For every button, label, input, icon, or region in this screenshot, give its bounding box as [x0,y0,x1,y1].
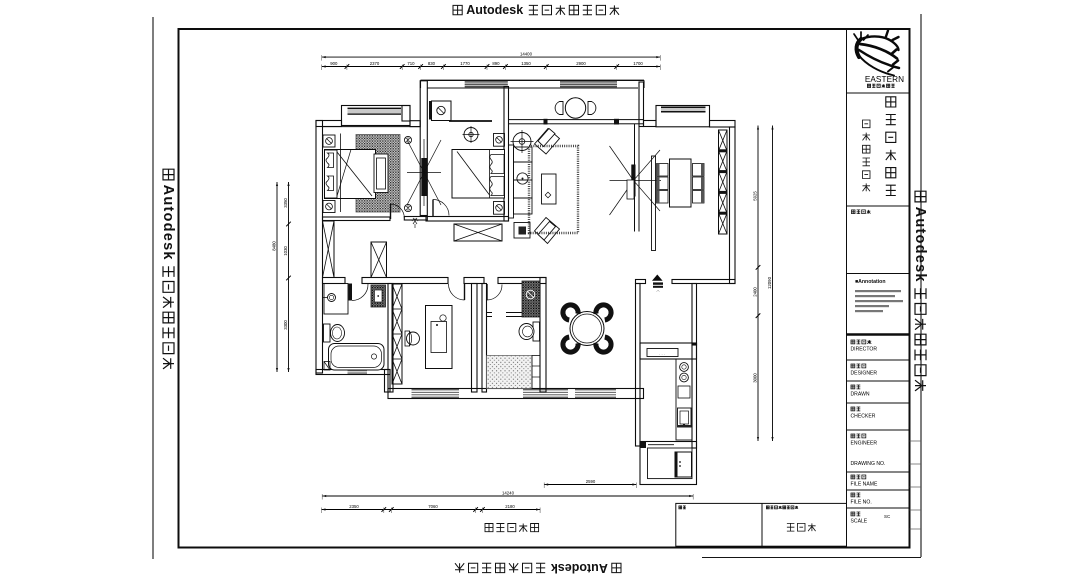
svg-text:5925: 5925 [753,191,758,201]
svg-text:·*·: ·*· [656,290,660,294]
svg-text:14400: 14400 [520,52,533,57]
svg-text:2400: 2400 [753,287,758,297]
svg-text:DRAWING NO.: DRAWING NO. [851,461,886,467]
svg-text:Autodesk: Autodesk [160,185,176,261]
svg-text:2590: 2590 [586,479,596,484]
svg-text:2180: 2180 [505,504,515,509]
svg-text:1030: 1030 [283,246,288,256]
svg-text:DIRECTOR: DIRECTOR [851,347,878,353]
svg-text:3300: 3300 [283,320,288,330]
svg-text:1770: 1770 [460,61,470,66]
svg-text:1700: 1700 [633,61,643,66]
svg-text:FILE NAME: FILE NAME [851,482,878,488]
svg-text:Autodesk: Autodesk [466,3,523,17]
svg-text:EASTERN: EASTERN [865,75,904,84]
svg-text:2900: 2900 [576,61,586,66]
svg-text:Autodesk: Autodesk [912,207,928,283]
svg-text:1350: 1350 [521,61,531,66]
svg-text:7060: 7060 [428,504,438,509]
svg-text:12090: 12090 [767,276,772,289]
svg-text:14240: 14240 [502,490,515,495]
svg-text:SC: SC [884,514,891,519]
svg-text:CHECKER: CHECKER [851,414,876,420]
svg-text:. . .: . . . [659,351,665,356]
svg-text:DESIGNER: DESIGNER [851,371,878,377]
svg-text:3350: 3350 [283,198,288,208]
svg-text:8480: 8480 [272,241,277,251]
svg-text:890: 890 [492,61,500,66]
svg-text:ENGINEER: ENGINEER [851,441,878,447]
svg-text:2350: 2350 [349,504,359,509]
svg-text:Autodesk: Autodesk [551,561,608,575]
svg-text:DRAWN: DRAWN [851,392,870,398]
svg-text:710: 710 [407,61,415,66]
svg-text:3000: 3000 [753,373,758,383]
svg-text:FILE NO.: FILE NO. [851,500,872,506]
svg-text:■Annotation: ■Annotation [855,279,886,285]
svg-text:2370: 2370 [370,61,380,66]
svg-text:SCALE: SCALE [851,519,868,525]
svg-text:900: 900 [330,61,338,66]
svg-text:830: 830 [428,61,436,66]
